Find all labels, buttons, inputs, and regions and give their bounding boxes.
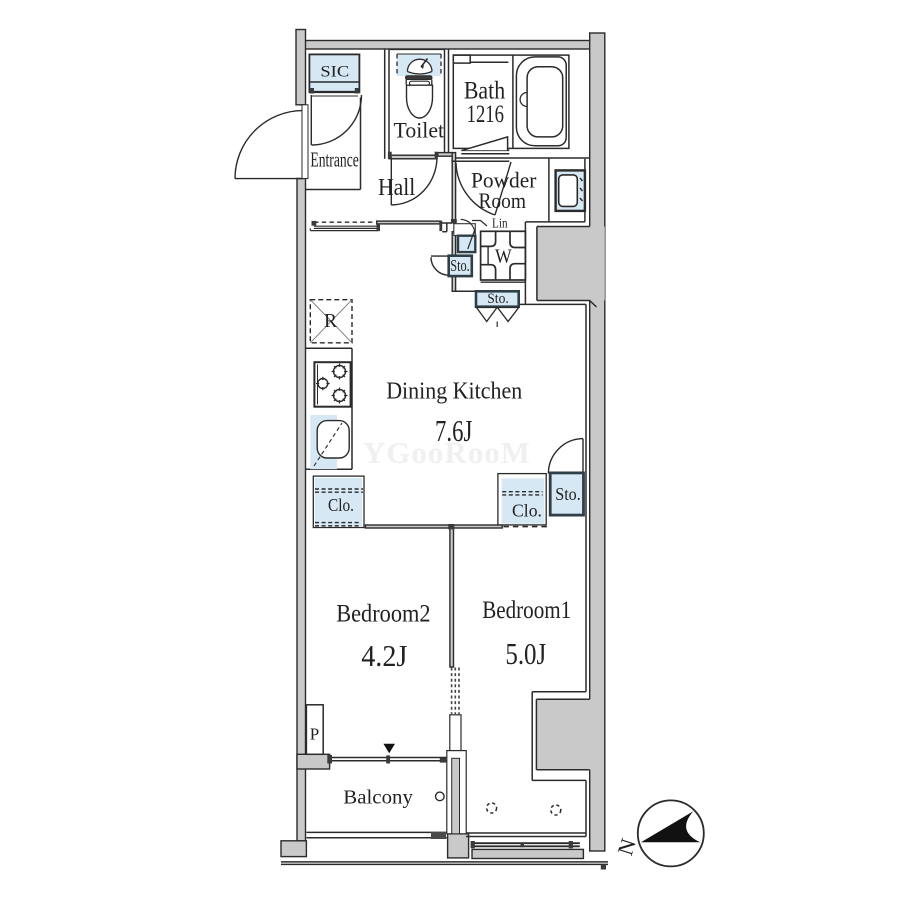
svg-text:Toilet: Toilet (394, 118, 445, 143)
svg-text:Sto.: Sto. (555, 484, 581, 504)
svg-text:Clo.: Clo. (512, 500, 542, 520)
svg-text:Dining Kitchen: Dining Kitchen (386, 379, 522, 405)
svg-text:W: W (495, 245, 512, 267)
svg-text:Bedroom1: Bedroom1 (482, 595, 571, 624)
svg-text:R: R (324, 311, 337, 332)
svg-text:Entrance: Entrance (310, 148, 358, 172)
svg-text:Sto.: Sto. (450, 256, 470, 275)
svg-text:Sto.: Sto. (487, 291, 509, 307)
svg-text:Lin: Lin (492, 215, 508, 230)
svg-text:Hall: Hall (378, 174, 415, 201)
svg-text:7.6J: 7.6J (435, 414, 472, 448)
svg-text:Clo.: Clo. (328, 495, 354, 515)
svg-text:Room: Room (478, 188, 526, 213)
svg-text:5.0J: 5.0J (505, 637, 546, 671)
svg-text:1216: 1216 (467, 101, 504, 128)
svg-text:P: P (310, 725, 319, 744)
svg-text:4.2J: 4.2J (361, 639, 407, 673)
svg-text:Bedroom2: Bedroom2 (336, 598, 430, 627)
svg-text:SIC: SIC (320, 64, 349, 81)
svg-text:Balcony: Balcony (343, 788, 413, 809)
